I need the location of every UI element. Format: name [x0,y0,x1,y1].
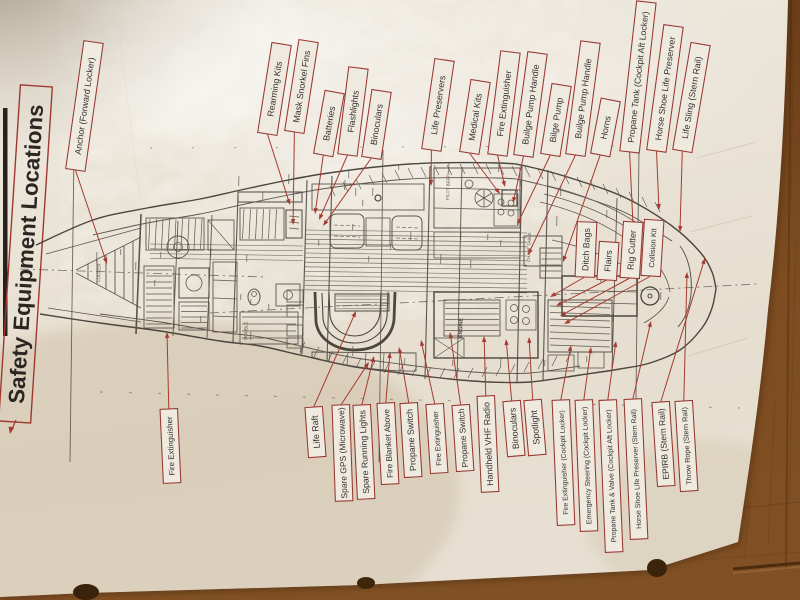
svg-text:DOUBLE: DOUBLE [243,321,249,340]
svg-text:LOCKER: LOCKER [96,263,102,282]
svg-text:ENGINE: ENGINE [458,317,465,338]
svg-text:Ditch Bags: Ditch Bags [580,227,592,271]
svg-text:CHART TABLE: CHART TABLE [526,232,532,262]
svg-text:FILOT BERTH: FILOT BERTH [445,171,451,200]
svg-text:Flairs: Flairs [602,249,613,272]
